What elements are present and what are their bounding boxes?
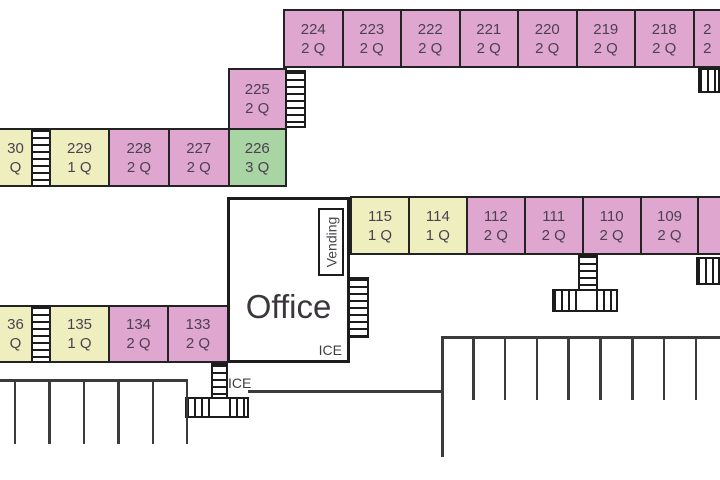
room-223: 223 2 Q — [342, 9, 403, 68]
room-beds: 2 Q — [127, 159, 151, 176]
room-number: 229 — [67, 140, 92, 157]
room-beds: 2 Q — [542, 227, 566, 244]
parking-stall-line — [504, 338, 507, 400]
parking-lot-edge-line — [248, 390, 443, 393]
stairway-icon — [211, 363, 228, 399]
parking-lot-edge-line — [441, 336, 720, 339]
room-beds: 1 Q — [67, 159, 91, 176]
room-beds: 2 Q — [652, 40, 676, 57]
room-beds: 2 Q — [245, 100, 269, 117]
office-label: Office — [230, 288, 347, 326]
parking-stall-line — [186, 380, 189, 444]
stairway-icon — [31, 128, 51, 187]
stair-landing-gap — [211, 399, 228, 416]
room-number: 227 — [186, 140, 211, 157]
room-228: 228 2 Q — [108, 128, 170, 187]
room-beds: 1 Q — [67, 335, 91, 352]
room-112: 112 2 Q — [466, 196, 526, 255]
parking-stall-line — [117, 380, 120, 444]
room-number: 221 — [476, 21, 501, 38]
room-135: 135 1 Q — [49, 305, 110, 363]
room-220: 220 2 Q — [517, 9, 578, 68]
office-ice-label: ICE — [319, 342, 342, 358]
room-225: 225 2 Q — [228, 68, 288, 130]
room-229: 229 1 Q — [49, 128, 110, 187]
room-beds: 2 Q — [484, 227, 508, 244]
vending-machine: Vending — [318, 208, 344, 276]
room-number: 224 — [301, 21, 326, 38]
room-number: 110 — [600, 208, 624, 225]
room-221: 221 2 Q — [459, 9, 520, 68]
room-beds: 2 Q — [535, 40, 559, 57]
parking-stall-line — [663, 338, 666, 400]
room-number: 222 — [418, 21, 443, 38]
stairway-icon — [698, 68, 720, 93]
room-224: 224 2 Q — [283, 9, 344, 68]
room-number: 109 — [657, 208, 682, 225]
room-133: 133 2 Q — [167, 305, 229, 363]
room-beds: 2 Q — [657, 227, 681, 244]
parking-stall-line — [83, 380, 86, 444]
room-number: 114 — [426, 208, 450, 225]
stairway-icon — [578, 254, 598, 291]
room-227: 227 2 Q — [168, 128, 230, 187]
room-partial-west-lower: 36 Q — [0, 305, 33, 363]
stairway-landing-icon — [552, 289, 618, 312]
room-beds: 2 Q — [186, 335, 210, 352]
room-number: 225 — [245, 81, 270, 98]
room-beds: 2 Q — [418, 40, 442, 57]
room-111: 111 2 Q — [524, 196, 584, 255]
room-219: 219 2 Q — [576, 9, 637, 68]
parking-stall-line — [599, 338, 602, 400]
room-number: 36 — [7, 316, 24, 333]
room-beds: 2 Q — [477, 40, 501, 57]
room-number: 115 — [368, 208, 392, 225]
room-beds: 3 Q — [245, 159, 269, 176]
stairway-icon — [31, 305, 51, 363]
room-number: 111 — [542, 208, 565, 225]
stair-landing-gap — [578, 291, 596, 310]
room-beds: 1 Q — [426, 227, 450, 244]
room-number: 2 — [703, 21, 711, 38]
room-number: 134 — [126, 316, 151, 333]
room-beds: 2 Q — [301, 40, 325, 57]
stairway-icon — [285, 70, 306, 128]
room-218: 218 2 Q — [634, 9, 695, 68]
parking-stall-line — [152, 380, 155, 444]
motel-floor-plan: 224 2 Q 223 2 Q 222 2 Q 221 2 Q 220 2 Q … — [0, 0, 720, 480]
room-partial-west-upper: 30 Q — [0, 128, 33, 187]
room-number: 30 — [7, 140, 24, 157]
parking-stall-line — [567, 338, 570, 400]
vending-label: Vending — [323, 217, 339, 268]
room-beds: 2 Q — [360, 40, 384, 57]
room-134: 134 2 Q — [108, 305, 169, 363]
parking-lot-edge-line — [0, 379, 188, 382]
room-222: 222 2 Q — [400, 9, 461, 68]
room-number: 112 — [484, 208, 508, 225]
room-beds: 2 Q — [187, 159, 211, 176]
room-beds: 2 Q — [126, 335, 150, 352]
parking-stall-line — [631, 338, 634, 400]
room-number: 220 — [535, 21, 560, 38]
room-number: 223 — [359, 21, 384, 38]
parking-stall-line — [48, 380, 51, 444]
room-number: 228 — [126, 140, 151, 157]
room-beds: Q — [10, 335, 22, 352]
room-number: 133 — [185, 316, 210, 333]
room-114: 114 1 Q — [408, 196, 468, 255]
ice-station-label: ICE — [228, 375, 251, 391]
parking-stall-line — [14, 380, 17, 444]
room-partial-east-mid — [697, 196, 720, 255]
stairway-icon — [348, 277, 369, 338]
room-partial-east-upper: 2 2 — [693, 9, 720, 68]
room-beds: Q — [10, 159, 22, 176]
parking-stall-line — [472, 338, 475, 400]
room-beds: 1 Q — [368, 227, 392, 244]
room-number: 135 — [67, 316, 92, 333]
room-beds: 2 — [703, 40, 711, 57]
room-number: 218 — [652, 21, 677, 38]
room-110: 110 2 Q — [582, 196, 642, 255]
room-number: 226 — [245, 140, 270, 157]
room-beds: 2 Q — [594, 40, 618, 57]
stairway-icon — [696, 257, 720, 285]
room-109: 109 2 Q — [640, 196, 700, 255]
parking-stall-line — [536, 338, 539, 400]
room-115: 115 1 Q — [350, 196, 410, 255]
parking-stall-line — [695, 338, 698, 400]
room-beds: 2 Q — [600, 227, 624, 244]
room-number: 219 — [593, 21, 618, 38]
room-226: 226 3 Q — [228, 128, 288, 187]
stairway-landing-icon — [185, 397, 249, 418]
parking-lot-edge-line — [441, 336, 444, 457]
